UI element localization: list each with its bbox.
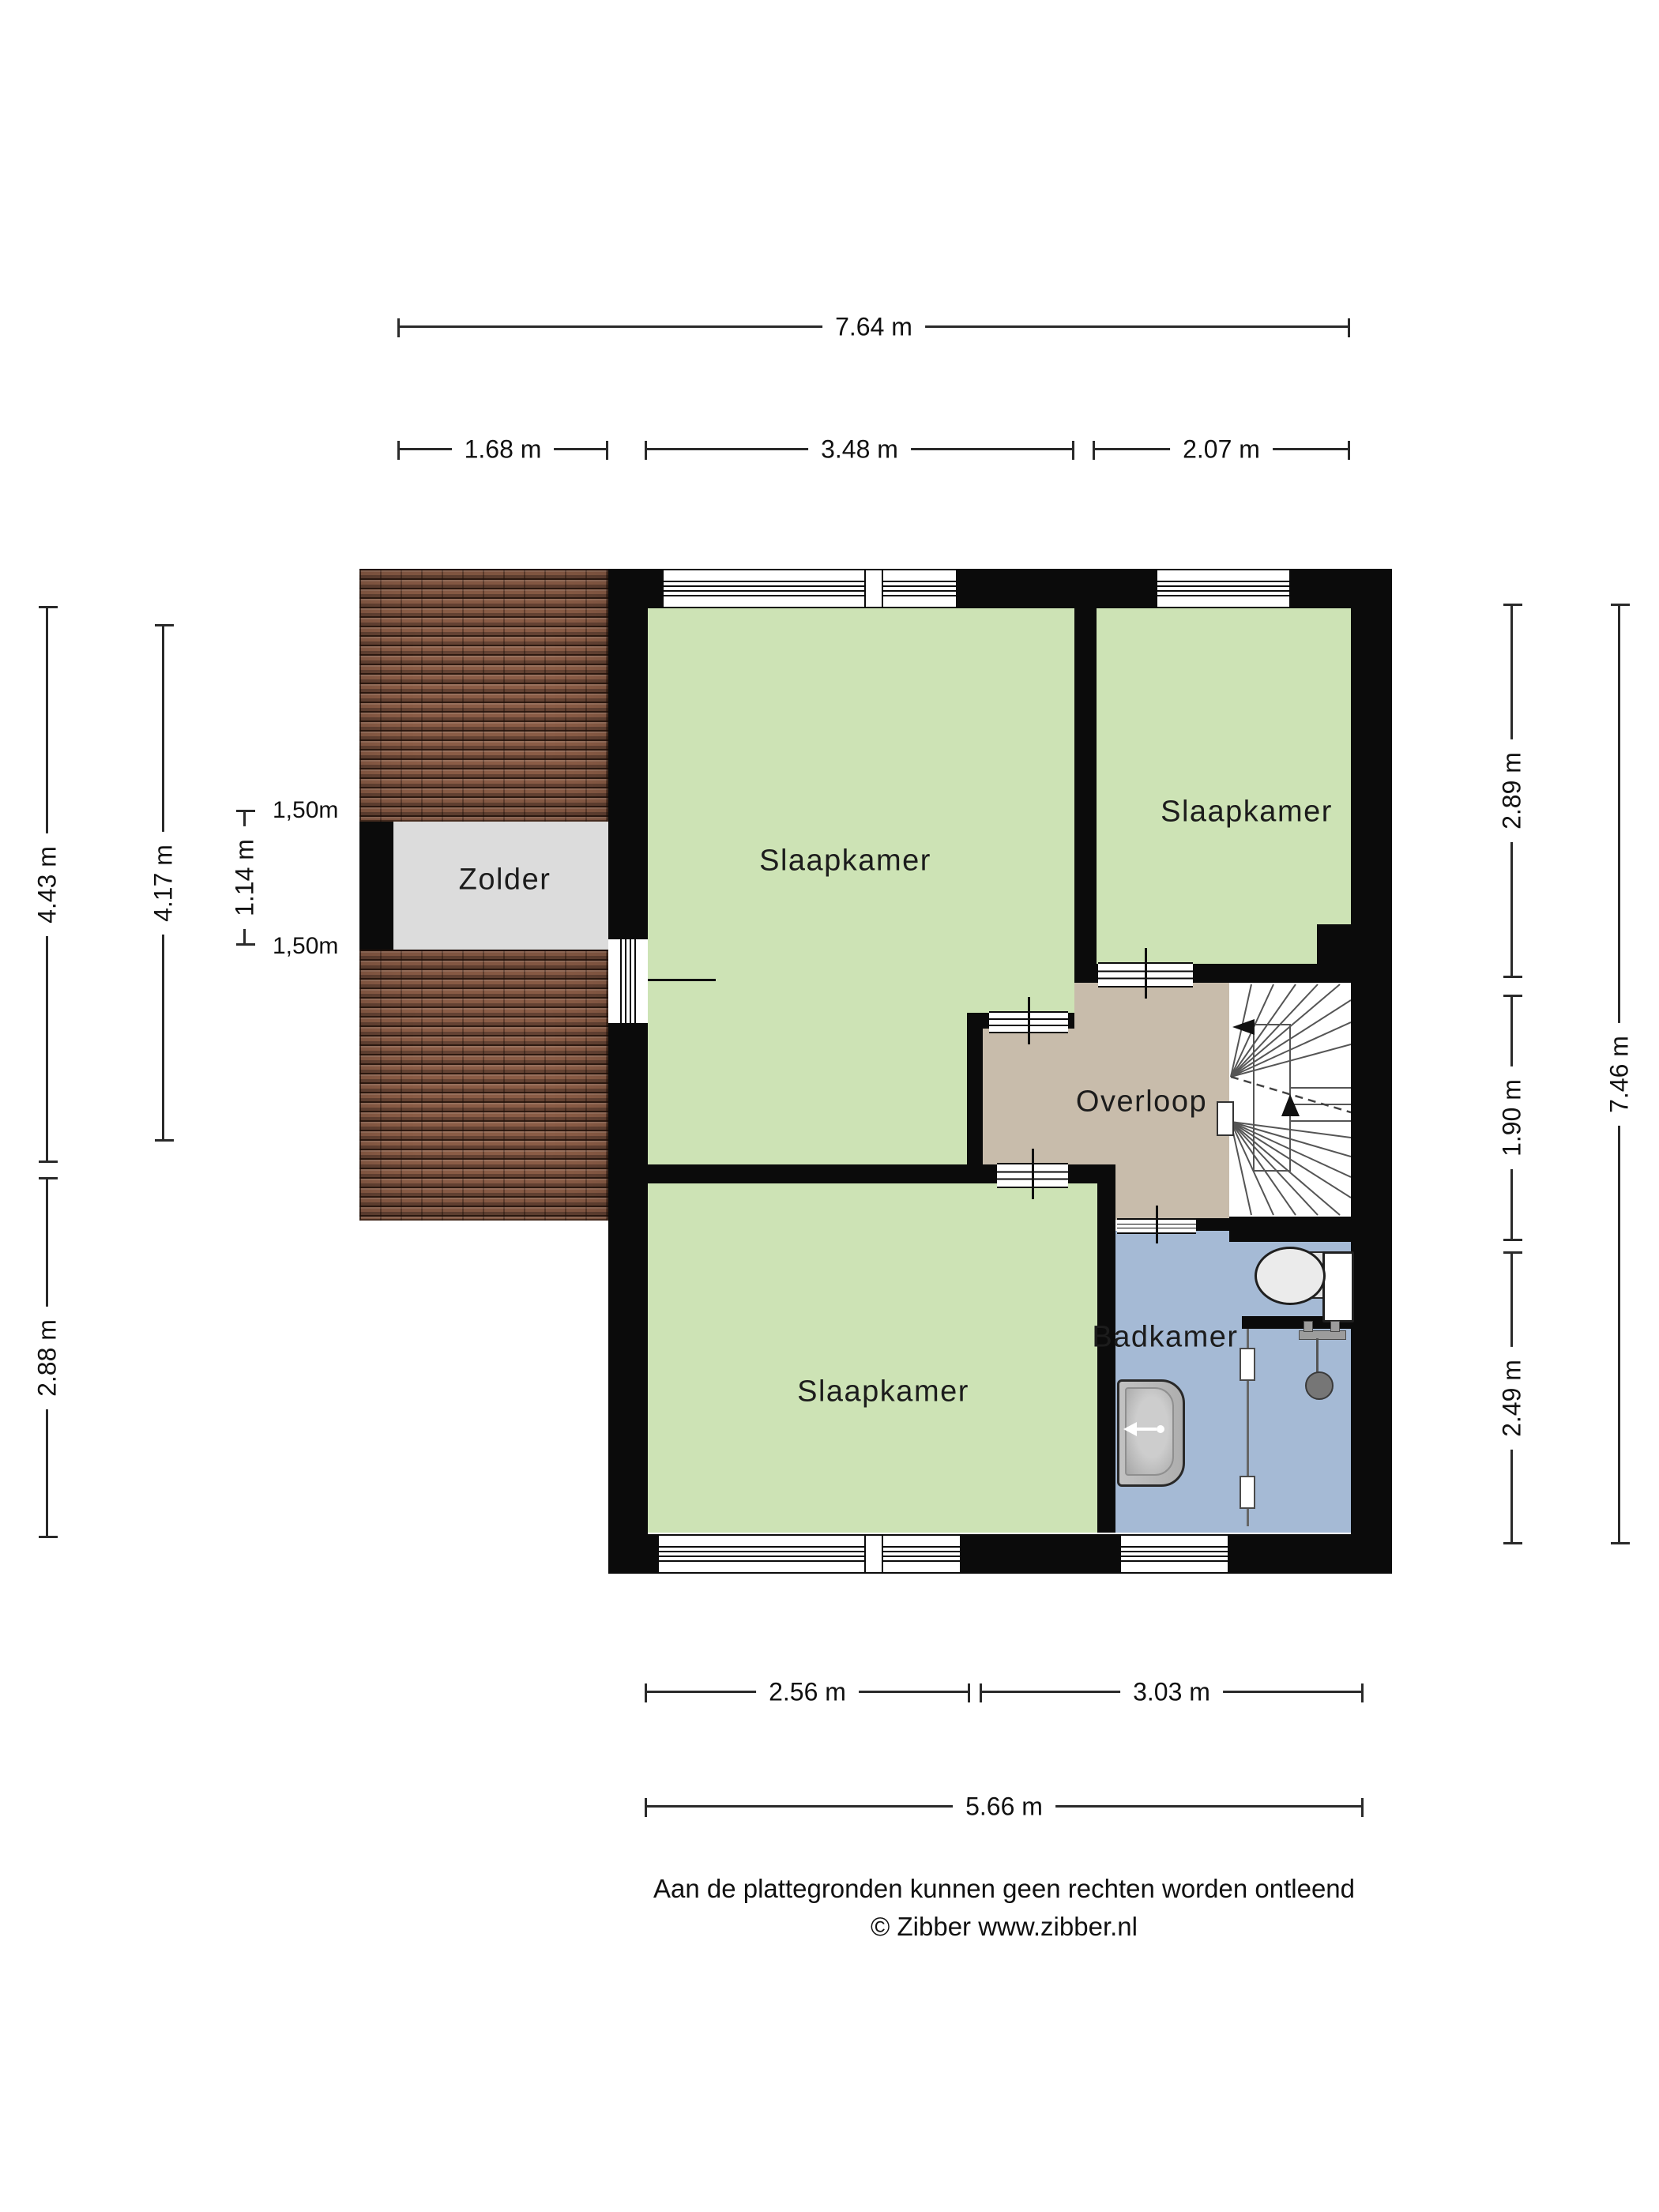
label-slaapkamer-groot: Slaapkamer bbox=[759, 845, 931, 878]
dim-bottom-256: 2.56 m bbox=[645, 1691, 970, 1693]
dim-left-114: 1.14 m bbox=[243, 810, 246, 946]
door-tick bbox=[1156, 1206, 1158, 1243]
dim-total-height: 7.46 m bbox=[1618, 604, 1620, 1544]
bathtub-faucet-dot bbox=[1157, 1425, 1164, 1433]
window-mullion bbox=[864, 1536, 883, 1572]
door-tick bbox=[1032, 1149, 1034, 1199]
door-tick bbox=[1028, 997, 1030, 1044]
shower-screen-handle bbox=[1240, 1476, 1255, 1509]
shower-head-icon bbox=[1305, 1371, 1334, 1400]
label-overloop: Overloop bbox=[1076, 1085, 1207, 1119]
dim-bedroom-groot-width: 3.48 m bbox=[645, 448, 1074, 450]
shower-mixer-knob bbox=[1303, 1321, 1313, 1332]
window-mullion bbox=[864, 570, 883, 607]
bathtub-faucet-arrow bbox=[1123, 1422, 1137, 1436]
wall-right bbox=[1351, 569, 1392, 1574]
wall-divider-bedrooms bbox=[1074, 608, 1097, 967]
dim-right-249: 2.49 m bbox=[1510, 1251, 1513, 1544]
stairs-newel-post bbox=[1217, 1101, 1234, 1136]
wall-stairs-bottom bbox=[1229, 1217, 1351, 1242]
shower-mixer-knob bbox=[1330, 1321, 1340, 1332]
wall-notch bbox=[1317, 924, 1351, 983]
window-slaapkamer-groot-top bbox=[662, 570, 957, 607]
label-badkamer: Badkamer bbox=[1092, 1321, 1238, 1355]
door-tick bbox=[1145, 948, 1147, 999]
dim-right-190: 1.90 m bbox=[1510, 995, 1513, 1241]
room-slaapkamer-rechts bbox=[1097, 608, 1351, 967]
dim-bottom-total: 5.66 m bbox=[645, 1805, 1364, 1808]
wall-zolder-left bbox=[359, 822, 393, 950]
wall-overloop-badkamer-stub bbox=[1196, 1218, 1229, 1231]
bathtub-faucet-line bbox=[1136, 1428, 1157, 1431]
copyright-text: © Zibber www.zibber.nl bbox=[871, 1912, 1138, 1942]
bathtub bbox=[1117, 1379, 1185, 1487]
window-badkamer-bottom bbox=[1119, 1536, 1229, 1572]
window-slaapkamer-onder-bottom bbox=[657, 1536, 961, 1572]
roof-lower bbox=[359, 950, 608, 1221]
room-overloop-pocket bbox=[983, 1029, 1074, 1164]
window-slaapkamer-rechts-top bbox=[1156, 570, 1291, 607]
shower-hose bbox=[1316, 1338, 1319, 1373]
dim-left-417: 4.17 m bbox=[162, 624, 164, 1142]
toilet-tank bbox=[1322, 1251, 1354, 1322]
window-zolder-tick bbox=[648, 979, 716, 981]
stairs bbox=[1229, 983, 1351, 1217]
dim-left-443: 4.43 m bbox=[46, 606, 48, 1163]
label-zolder: Zolder bbox=[459, 863, 551, 897]
dim-total-width: 7.64 m bbox=[397, 325, 1350, 328]
dim-right-289: 2.89 m bbox=[1510, 604, 1513, 978]
dim-bottom-303: 3.03 m bbox=[980, 1691, 1364, 1693]
label-slaapkamer-onder: Slaapkamer bbox=[797, 1375, 969, 1409]
knee-wall-height-bottom: 1,50m bbox=[273, 933, 338, 960]
dim-bedroom-rechts-width: 2.07 m bbox=[1093, 448, 1350, 450]
wall-left bbox=[608, 569, 648, 1574]
shower-screen-handle bbox=[1240, 1348, 1255, 1381]
label-slaapkamer-rechts: Slaapkamer bbox=[1161, 796, 1333, 829]
toilet-icon bbox=[1255, 1247, 1326, 1305]
roof-upper bbox=[359, 569, 608, 822]
dim-left-288: 2.88 m bbox=[46, 1177, 48, 1538]
dim-roof-width: 1.68 m bbox=[397, 448, 608, 450]
room-slaapkamer-onder bbox=[648, 1183, 1097, 1533]
window-zolder bbox=[608, 938, 648, 1025]
wall-pocket-left bbox=[967, 1013, 983, 1183]
disclaimer-text: Aan de plattegronden kunnen geen rechten… bbox=[653, 1874, 1355, 1904]
knee-wall-height-top: 1,50m bbox=[273, 797, 338, 824]
